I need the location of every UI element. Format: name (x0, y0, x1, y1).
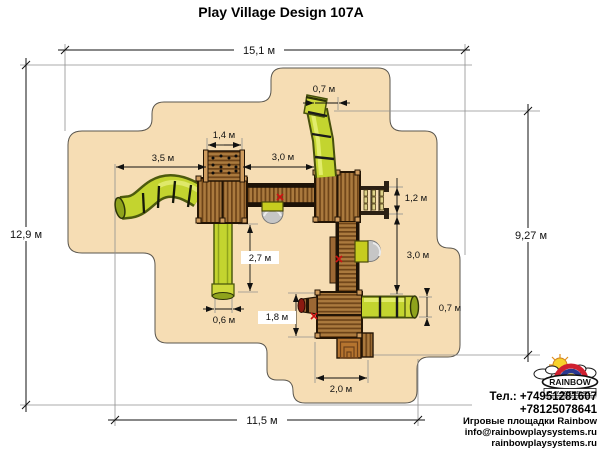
dim-wave-slide: 3,5 м (152, 153, 174, 164)
dim-right-walkway: 3,0 м (407, 250, 429, 261)
tower-left (196, 176, 247, 223)
dim-overall-width-bottom: 11,5 м (246, 415, 277, 427)
tower-lower (315, 290, 362, 338)
telescope (298, 297, 317, 314)
contact-block: Тел.: +74951281607 +78125078641 Игровые … (463, 391, 597, 449)
tube-slide-right (362, 296, 419, 318)
climbing-wall (204, 150, 245, 182)
ground-area (68, 68, 460, 403)
phone-primary: Тел.: +74951281607 (463, 391, 597, 404)
logo-brand: RAINBOW (549, 377, 592, 387)
dim-net: 1,2 м (405, 193, 427, 204)
dim-straight-slide-length: 2,7 м (249, 253, 271, 264)
bubble-dome-walkway (355, 241, 381, 263)
dim-stairs: 2,0 м (330, 384, 352, 395)
dim-right-tube: 0,7 м (439, 303, 461, 314)
bubble-dome-bridge (262, 202, 283, 224)
dim-overall-height-left: 12,9 м (10, 229, 42, 241)
page-title: Play Village Design 107A (100, 4, 462, 20)
dim-overall-width-top: 15,1 м (243, 45, 275, 57)
contact-email: info@rainbowplaysystems.ru (463, 428, 597, 439)
dim-straight-slide-width: 0,6 м (213, 315, 235, 326)
dim-climbing-wall: 1,4 м (213, 130, 235, 141)
tower-central (313, 170, 360, 222)
contact-website: rainbowplaysystems.ru (463, 439, 597, 450)
site-plan-drawing: 15,1 м 12,9 м 9,27 м 11,5 м 3,5 м 1,4 м … (0, 0, 600, 455)
playground-plan-page: 15,1 м 12,9 м 9,27 м 11,5 м 3,5 м 1,4 м … (0, 0, 600, 455)
dim-lower-tower: 1,8 м (266, 312, 288, 323)
dim-bridge: 3,0 м (272, 152, 294, 163)
straight-slide (212, 222, 234, 300)
dim-top-tube: 0,7 м (313, 84, 335, 95)
dim-overall-height-right: 9,27 м (515, 230, 547, 242)
